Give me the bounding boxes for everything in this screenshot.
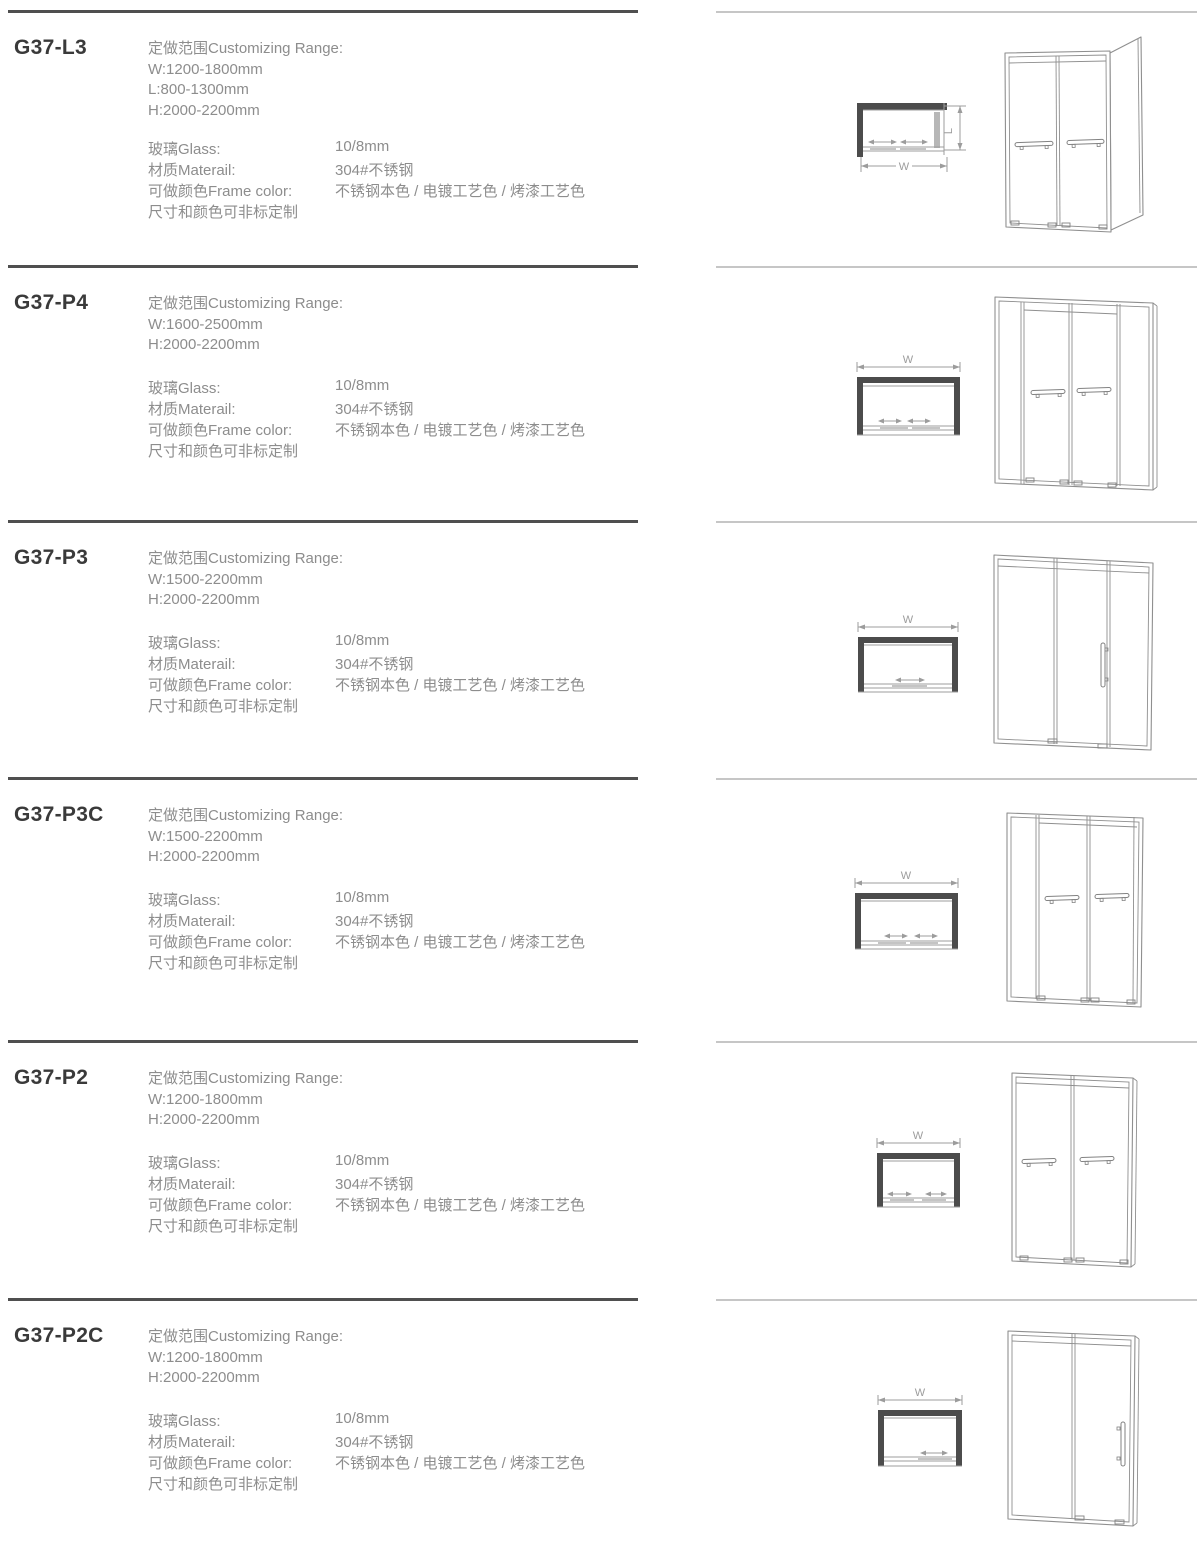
- section-divider-left: [8, 520, 638, 523]
- front-view-drawing: [988, 550, 1163, 755]
- spec-row: 尺寸和颜色可非标定制: [148, 695, 298, 716]
- spec-row: 玻璃Glass:10/8mm: [148, 1152, 298, 1173]
- model-name: G37-P3C: [14, 803, 104, 827]
- spec-label: 尺寸和颜色可非标定制: [148, 443, 298, 460]
- section-divider-right: [716, 1041, 1197, 1043]
- spec-label: 玻璃Glass:: [148, 635, 221, 652]
- spec-row: 材质Materail:304#不锈钢: [148, 1431, 298, 1452]
- section-divider-right: [716, 266, 1197, 268]
- spec-value: 10/8mm: [335, 889, 389, 906]
- range-line: W:1200-1800mm: [148, 1348, 343, 1369]
- model-name: G37-P4: [14, 291, 88, 315]
- spec-label: 可做颜色Frame color:: [148, 422, 292, 439]
- spec-row: 尺寸和颜色可非标定制: [148, 1215, 298, 1236]
- spec-table: 玻璃Glass:10/8mm 材质Materail:304#不锈钢 可做颜色Fr…: [148, 1410, 298, 1494]
- spec-label: 玻璃Glass:: [148, 892, 221, 909]
- spec-label: 材质Materail:: [148, 1434, 236, 1451]
- spec-value: 304#不锈钢: [335, 1173, 413, 1194]
- range-title: 定做范围Customizing Range:: [148, 294, 343, 315]
- range-line: H:2000-2200mm: [148, 335, 343, 356]
- spec-value: 不锈钢本色 / 电镀工艺色 / 烤漆工艺色: [335, 180, 585, 201]
- spec-row: 玻璃Glass:10/8mm: [148, 138, 298, 159]
- spec-label: 可做颜色Frame color:: [148, 1455, 292, 1472]
- top-view-drawing: W: [872, 1128, 972, 1213]
- front-view-drawing: [1003, 808, 1148, 1013]
- product-section-g37-p2c: G37-P2C 定做范围Customizing Range: W:1200-18…: [0, 1298, 1200, 1556]
- customizing-range: 定做范围Customizing Range: W:1600-2500mm H:2…: [148, 294, 343, 356]
- spec-label: 材质Materail:: [148, 656, 236, 673]
- spec-row: 材质Materail:304#不锈钢: [148, 1173, 298, 1194]
- spec-label: 尺寸和颜色可非标定制: [148, 955, 298, 972]
- product-section-g37-p3c: G37-P3C 定做范围Customizing Range: W:1500-22…: [0, 777, 1200, 1040]
- section-divider-left: [8, 265, 638, 268]
- top-view-drawing: W: [850, 868, 965, 956]
- dimension-label-w: W: [901, 870, 912, 882]
- spec-row: 可做颜色Frame color:不锈钢本色 / 电镀工艺色 / 烤漆工艺色: [148, 931, 298, 952]
- spec-row: 可做颜色Frame color:不锈钢本色 / 电镀工艺色 / 烤漆工艺色: [148, 1194, 298, 1215]
- top-view-drawing: W: [850, 352, 970, 442]
- dimension-label-w: W: [903, 354, 914, 366]
- spec-row: 材质Materail:304#不锈钢: [148, 159, 298, 180]
- spec-row: 材质Materail:304#不锈钢: [148, 910, 298, 931]
- spec-label: 玻璃Glass:: [148, 1155, 221, 1172]
- model-name: G37-P2: [14, 1066, 88, 1090]
- spec-label: 可做颜色Frame color:: [148, 677, 292, 694]
- section-divider-right: [716, 778, 1197, 780]
- spec-row: 玻璃Glass:10/8mm: [148, 889, 298, 910]
- product-section-g37-p2: G37-P2 定做范围Customizing Range: W:1200-180…: [0, 1040, 1200, 1298]
- model-name: G37-P2C: [14, 1324, 104, 1348]
- front-view-drawing: [1008, 1068, 1143, 1273]
- dimension-label-w: W: [913, 1130, 924, 1142]
- spec-label: 材质Materail:: [148, 913, 236, 930]
- spec-value: 304#不锈钢: [335, 653, 413, 674]
- spec-row: 材质Materail:304#不锈钢: [148, 653, 298, 674]
- spec-label: 玻璃Glass:: [148, 141, 221, 158]
- top-view-drawing: W: [872, 1386, 972, 1474]
- range-title: 定做范围Customizing Range:: [148, 1327, 343, 1348]
- range-line: L:800-1300mm: [148, 80, 343, 101]
- range-title: 定做范围Customizing Range:: [148, 806, 343, 827]
- spec-row: 材质Materail:304#不锈钢: [148, 398, 298, 419]
- spec-table: 玻璃Glass:10/8mm 材质Materail:304#不锈钢 可做颜色Fr…: [148, 889, 298, 973]
- spec-row: 尺寸和颜色可非标定制: [148, 952, 298, 973]
- spec-table: 玻璃Glass:10/8mm 材质Materail:304#不锈钢 可做颜色Fr…: [148, 377, 298, 461]
- spec-table: 玻璃Glass:10/8mm 材质Materail:304#不锈钢 可做颜色Fr…: [148, 138, 298, 222]
- spec-value: 10/8mm: [335, 138, 389, 155]
- spec-table: 玻璃Glass:10/8mm 材质Materail:304#不锈钢 可做颜色Fr…: [148, 1152, 298, 1236]
- range-title: 定做范围Customizing Range:: [148, 39, 343, 60]
- spec-label: 尺寸和颜色可非标定制: [148, 1218, 298, 1235]
- spec-value: 不锈钢本色 / 电镀工艺色 / 烤漆工艺色: [335, 1194, 585, 1215]
- dimension-label-w: W: [899, 161, 910, 173]
- customizing-range: 定做范围Customizing Range: W:1200-1800mm H:2…: [148, 1327, 343, 1389]
- top-view-drawing: W L: [840, 95, 990, 180]
- section-divider-left: [8, 10, 638, 13]
- section-divider-left: [8, 777, 638, 780]
- spec-row: 尺寸和颜色可非标定制: [148, 1473, 298, 1494]
- top-view-drawing: W: [852, 612, 967, 700]
- dimension-label-w: W: [915, 1387, 926, 1399]
- range-line: W:1200-1800mm: [148, 60, 343, 81]
- spec-row: 尺寸和颜色可非标定制: [148, 440, 298, 461]
- front-view-drawing: [1003, 1326, 1143, 1531]
- spec-value: 304#不锈钢: [335, 910, 413, 931]
- customizing-range: 定做范围Customizing Range: W:1500-2200mm H:2…: [148, 806, 343, 868]
- spec-value: 304#不锈钢: [335, 1431, 413, 1452]
- range-line: W:1500-2200mm: [148, 827, 343, 848]
- spec-value: 10/8mm: [335, 632, 389, 649]
- spec-value: 304#不锈钢: [335, 159, 413, 180]
- range-line: H:2000-2200mm: [148, 590, 343, 611]
- range-line: W:1200-1800mm: [148, 1090, 343, 1111]
- spec-label: 尺寸和颜色可非标定制: [148, 698, 298, 715]
- spec-label: 玻璃Glass:: [148, 1413, 221, 1430]
- spec-value: 不锈钢本色 / 电镀工艺色 / 烤漆工艺色: [335, 674, 585, 695]
- section-divider-left: [8, 1298, 638, 1301]
- front-view-drawing: [995, 30, 1150, 240]
- spec-value: 10/8mm: [335, 377, 389, 394]
- spec-label: 玻璃Glass:: [148, 380, 221, 397]
- customizing-range: 定做范围Customizing Range: W:1200-1800mm L:8…: [148, 39, 343, 121]
- range-title: 定做范围Customizing Range:: [148, 1069, 343, 1090]
- catalog-page: G37-L3 定做范围Customizing Range: W:1200-180…: [0, 0, 1200, 1556]
- spec-label: 材质Materail:: [148, 1176, 236, 1193]
- spec-row: 可做颜色Frame color:不锈钢本色 / 电镀工艺色 / 烤漆工艺色: [148, 1452, 298, 1473]
- spec-label: 尺寸和颜色可非标定制: [148, 1476, 298, 1493]
- customizing-range: 定做范围Customizing Range: W:1500-2200mm H:2…: [148, 549, 343, 611]
- model-name: G37-P3: [14, 546, 88, 570]
- spec-row: 玻璃Glass:10/8mm: [148, 1410, 298, 1431]
- spec-value: 不锈钢本色 / 电镀工艺色 / 烤漆工艺色: [335, 1452, 585, 1473]
- spec-value: 不锈钢本色 / 电镀工艺色 / 烤漆工艺色: [335, 931, 585, 952]
- product-section-g37-p3: G37-P3 定做范围Customizing Range: W:1500-220…: [0, 520, 1200, 777]
- spec-label: 可做颜色Frame color:: [148, 934, 292, 951]
- spec-value: 不锈钢本色 / 电镀工艺色 / 烤漆工艺色: [335, 419, 585, 440]
- section-divider-right: [716, 11, 1197, 13]
- spec-row: 尺寸和颜色可非标定制: [148, 201, 298, 222]
- spec-row: 玻璃Glass:10/8mm: [148, 377, 298, 398]
- spec-row: 可做颜色Frame color:不锈钢本色 / 电镀工艺色 / 烤漆工艺色: [148, 674, 298, 695]
- range-line: W:1500-2200mm: [148, 570, 343, 591]
- dimension-label-w: W: [903, 614, 914, 626]
- section-divider-right: [716, 1299, 1197, 1301]
- range-line: H:2000-2200mm: [148, 101, 343, 122]
- spec-row: 玻璃Glass:10/8mm: [148, 632, 298, 653]
- spec-value: 10/8mm: [335, 1152, 389, 1169]
- spec-label: 尺寸和颜色可非标定制: [148, 204, 298, 221]
- spec-value: 304#不锈钢: [335, 398, 413, 419]
- product-section-g37-l3: G37-L3 定做范围Customizing Range: W:1200-180…: [0, 10, 1200, 265]
- range-title: 定做范围Customizing Range:: [148, 549, 343, 570]
- range-line: H:2000-2200mm: [148, 1110, 343, 1131]
- dimension-label-l: L: [943, 128, 955, 134]
- spec-row: 可做颜色Frame color:不锈钢本色 / 电镀工艺色 / 烤漆工艺色: [148, 180, 298, 201]
- spec-table: 玻璃Glass:10/8mm 材质Materail:304#不锈钢 可做颜色Fr…: [148, 632, 298, 716]
- section-divider-right: [716, 521, 1197, 523]
- spec-label: 材质Materail:: [148, 401, 236, 418]
- spec-label: 材质Materail:: [148, 162, 236, 179]
- range-line: H:2000-2200mm: [148, 847, 343, 868]
- spec-label: 可做颜色Frame color:: [148, 183, 292, 200]
- model-name: G37-L3: [14, 36, 87, 60]
- front-view-drawing: [988, 294, 1163, 494]
- section-divider-left: [8, 1040, 638, 1043]
- range-line: W:1600-2500mm: [148, 315, 343, 336]
- spec-label: 可做颜色Frame color:: [148, 1197, 292, 1214]
- range-line: H:2000-2200mm: [148, 1368, 343, 1389]
- customizing-range: 定做范围Customizing Range: W:1200-1800mm H:2…: [148, 1069, 343, 1131]
- spec-row: 可做颜色Frame color:不锈钢本色 / 电镀工艺色 / 烤漆工艺色: [148, 419, 298, 440]
- spec-value: 10/8mm: [335, 1410, 389, 1427]
- product-section-g37-p4: G37-P4 定做范围Customizing Range: W:1600-250…: [0, 265, 1200, 520]
